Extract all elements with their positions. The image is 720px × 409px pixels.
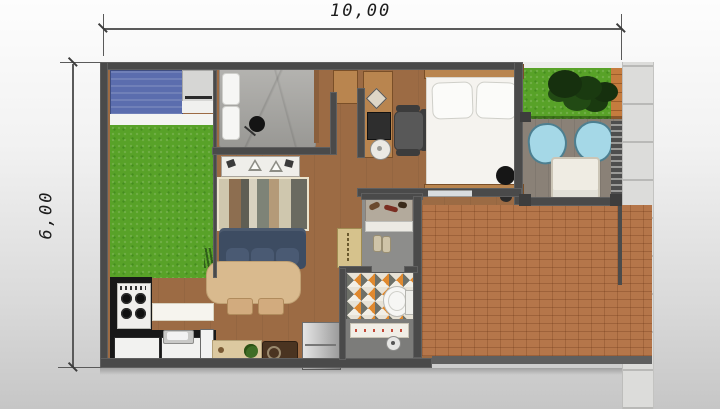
pillow [222,73,240,105]
garden-brick-edge [611,68,622,120]
height-dimension-label: 6,00 [36,191,56,240]
decor-triangle-inner [251,162,259,169]
wall-bedroom2-left [357,88,365,158]
bath-mat [350,323,409,338]
welcome-mat [337,228,362,268]
office-chair [394,111,424,151]
wall-post [610,194,622,206]
stove-burner [135,308,146,319]
dining-table [206,261,301,304]
driveway-gate-line [618,205,622,285]
extension-line [103,14,104,56]
wall-mid-right [413,196,422,358]
decor-dot [218,347,224,353]
dining-chair [227,298,253,315]
monitor [367,112,391,140]
wall-post [520,112,531,122]
wall-bathroom-left [339,268,346,360]
driveway-curb [432,356,652,364]
shower-drain-hole [391,341,395,345]
wall-left [100,62,108,368]
closet-shelf [365,221,413,232]
toilet-seat [388,291,406,311]
wall-post [519,194,531,206]
bedroom2-window [428,190,472,197]
office-chair-arm [396,149,420,156]
welcome-mat-script [347,233,349,261]
stool-center [377,146,382,151]
pillow [431,81,473,119]
wall-bathroom-top2 [404,266,418,273]
refrigerator-handle [305,344,336,346]
wall-right-house [514,62,523,205]
pendant-lamp [249,116,265,132]
dining-chair [258,298,284,315]
pillow [475,81,517,119]
kitchen-sink-basin [167,332,188,340]
decor-triangle [269,160,283,172]
shoe [398,201,408,208]
office-chair-arm [396,105,420,112]
patio-table [551,157,600,200]
pillow [222,106,240,140]
striped-rug [217,177,309,231]
extension-line [60,62,102,63]
gate [611,121,622,198]
stove-knobs [120,286,146,290]
side-yard-grass [110,125,214,278]
decor-triangle [248,159,262,171]
dimension-line-top [103,28,622,30]
wall-bedroom1 [212,147,333,155]
stove-burner [135,293,146,304]
floor-lamp [496,166,515,185]
dimension-line-left [72,64,74,368]
deck-edge [522,116,622,119]
wall-bottom [100,358,432,368]
laundry-tank [110,70,183,116]
decor-triangle-inner [272,163,280,170]
bed-frame-edge [314,70,319,143]
floor-plan-render: 10,00 6,00 [0,0,720,409]
kitchen-island [152,303,214,321]
wall-deck-bottom [522,197,622,206]
washing-machine-slot [185,96,212,99]
slipper [373,235,382,252]
stove-burner [121,308,132,319]
extension-line [621,14,622,60]
slipper [382,236,391,253]
potted-plant [244,344,258,358]
garden-tree [548,70,582,98]
laundry-counter [182,101,215,113]
wall-top [100,62,520,70]
extension-line [58,367,102,368]
stove-burner [121,293,132,304]
lot-shadow [100,368,622,375]
width-dimension-label: 10,00 [330,1,391,21]
wall-yard-edge [213,70,217,278]
wall-bedroom1-right [330,92,337,155]
